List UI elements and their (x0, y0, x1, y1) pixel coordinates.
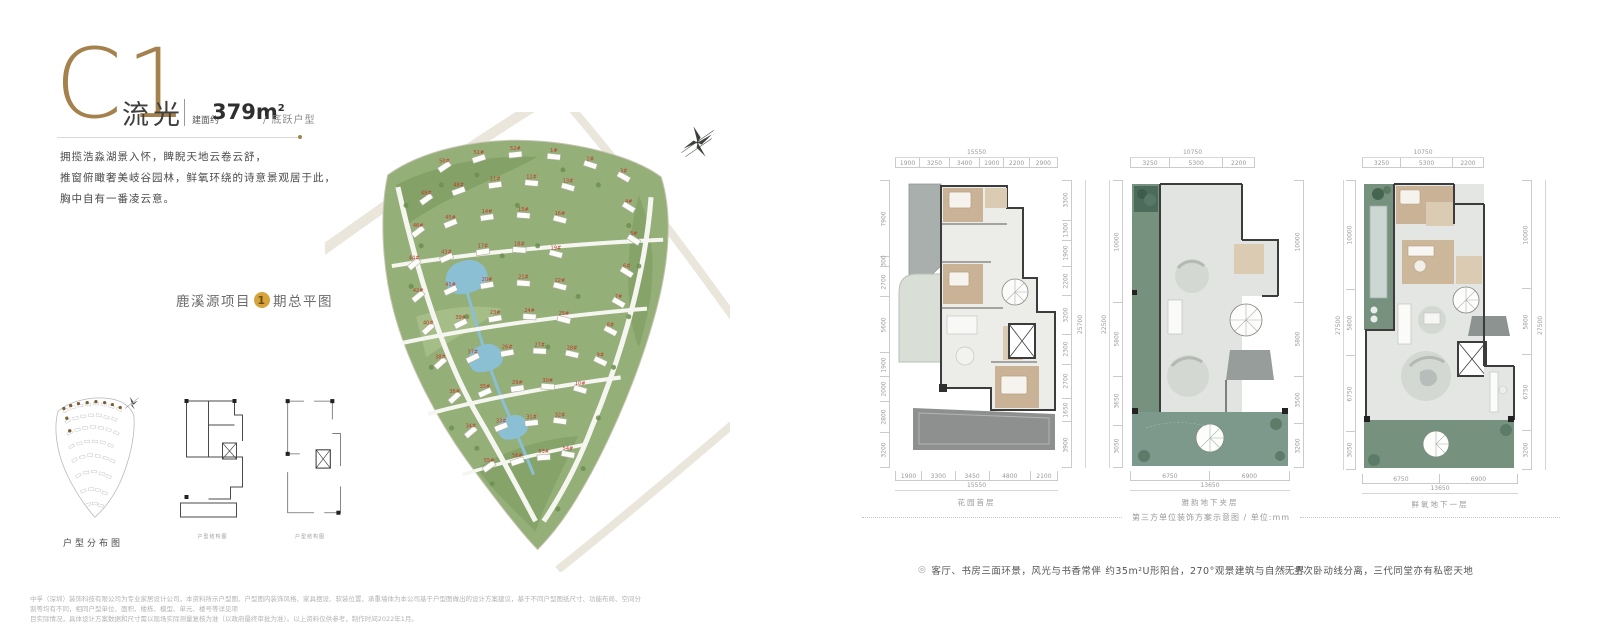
planB-dim-bottom-total: 13650 (1130, 481, 1290, 491)
svg-text:33#: 33# (496, 418, 507, 424)
planC-dim-bottom-total: 13650 (1362, 484, 1518, 494)
structure-diagram-2-label: 户型结构图 (265, 533, 355, 540)
svg-text:5#: 5# (630, 231, 637, 237)
svg-text:14#: 14# (482, 209, 493, 215)
svg-text:26#: 26# (502, 345, 513, 351)
svg-text:50#: 50# (439, 158, 450, 164)
disclaimer: 中孚（深圳）装饰科技有限公司为专业家居设计公司，本资料所示户型图、户型图内装饰风… (30, 594, 642, 624)
planB-dim-left: 10000580036503050 (1113, 180, 1123, 468)
svg-text:38#: 38# (435, 355, 446, 361)
svg-text:16#: 16# (555, 211, 566, 217)
planA-dim-top-total: 15550 (895, 148, 1058, 158)
ring-bullet-icon: ◎ (918, 565, 926, 575)
floorplan-mezzanine-level (1130, 180, 1290, 468)
planB-dim-top: 325053002200 (1130, 158, 1255, 168)
brochure-page: C1 流光 建面约 379m2 / 底跃户型 拥揽浩淼湖景入怀，睥睨天地云卷云舒… (0, 0, 1600, 643)
note-dotted-line-right (1300, 517, 1560, 518)
svg-text:29#: 29# (512, 380, 523, 386)
feature-text-3: 主次卧动线分离，三代同堂亦有私密天地 (1293, 563, 1473, 577)
svg-text:6#: 6# (623, 264, 630, 270)
svg-text:1#: 1# (550, 148, 557, 154)
note-dotted-line-left (862, 517, 1122, 518)
svg-text:10#: 10# (575, 381, 586, 387)
svg-text:28#: 28# (567, 346, 578, 352)
planB-dim-bottom: 67506900 (1130, 471, 1290, 481)
disclaimer-line-1: 中孚（深圳）装饰科技有限公司为专业家居设计公司，本资料所示户型图、户型图内装饰风… (30, 594, 642, 614)
planA-caption: 花园首层 (895, 497, 1058, 508)
distribution-diagram-label: 户型分布图 (38, 536, 148, 549)
svg-text:25#: 25# (559, 311, 570, 317)
svg-text:42#: 42# (413, 288, 424, 294)
svg-text:2#: 2# (587, 156, 594, 162)
svg-text:53#: 53# (538, 449, 549, 455)
phase-number-badge: 1 (254, 292, 270, 308)
svg-text:27#: 27# (534, 343, 545, 349)
floorplan-basement-level (1362, 180, 1518, 470)
svg-text:4#: 4# (625, 199, 632, 205)
svg-text:3#: 3# (620, 168, 627, 174)
unit-distribution-diagram (38, 392, 148, 524)
svg-text:32#: 32# (555, 412, 566, 418)
planC-dim-left-total: 27500 (1334, 180, 1344, 470)
header-rule-dot (298, 135, 302, 139)
planA-dim-bottom: 19003300345048002100 (895, 471, 1058, 481)
masterplan-title-suffix: 期总平图 (273, 290, 333, 310)
feature-text-2: 约35m²U形阳台，270°观景建筑与自然无界 (1105, 563, 1305, 577)
intro-line-1: 拥揽浩淼湖景入怀，睥睨天地云卷云舒， (60, 147, 336, 168)
svg-text:13#: 13# (563, 179, 574, 185)
svg-text:45#: 45# (445, 215, 456, 221)
disclaimer-line-2: 目实际情况，具体设计方案数据和尺寸需以现场实际测量复核为准（以政府最终审批为准）… (30, 614, 642, 624)
svg-text:22#: 22# (555, 278, 566, 284)
site-masterplan: 50#51#52#1#2#3#49#48#11#12#13#4#46#45#14… (325, 112, 730, 572)
svg-text:12#: 12# (526, 174, 537, 180)
intro-paragraph: 拥揽浩淼湖景入怀，睥睨天地云卷云舒， 推窗俯瞰奢美岐谷园林，鲜氧环绕的诗意景观居… (60, 147, 336, 210)
intro-line-3: 胸中自有一番凌云意。 (60, 189, 336, 210)
header-divider (184, 99, 185, 126)
svg-text:41#: 41# (445, 282, 456, 288)
north-compass-icon (681, 126, 713, 156)
feature-text-1: 客厅、书房三面环景，风光与书香常伴 (931, 563, 1101, 577)
header-rule (57, 137, 300, 138)
planA-dim-right: 330013001900220032002300270016503900 (1062, 180, 1072, 468)
planC-dim-left: 10000580067503050 (1346, 180, 1356, 470)
svg-text:15#: 15# (518, 207, 529, 213)
unit-name: 流光 (122, 93, 184, 132)
feature-item-2: ◎ 约35m²U形阳台，270°观景建筑与自然无界 (1092, 563, 1305, 577)
planA-dim-bottom-total: 15550 (895, 481, 1058, 491)
svg-text:31#: 31# (526, 414, 537, 420)
svg-text:24#: 24# (524, 308, 535, 314)
svg-text:39#: 39# (455, 315, 466, 321)
svg-text:36#: 36# (449, 389, 460, 395)
planC-dim-bottom: 67506900 (1362, 474, 1518, 484)
feature-item-1: ◎ 客厅、书房三面环景，风光与书香常伴 (918, 563, 1101, 577)
svg-text:9#: 9# (597, 353, 604, 359)
planC-dim-right: 10000580067503200 (1522, 180, 1532, 470)
ring-bullet-icon: ◎ (1280, 565, 1288, 575)
svg-text:56#: 56# (512, 453, 523, 459)
planA-dim-top: 190032503400190022002900 (895, 158, 1058, 168)
svg-text:37#: 37# (467, 350, 478, 356)
plan-note-row: 第三方单位装饰方案示意图 / 单位:mm (862, 512, 1560, 523)
svg-text:34#: 34# (465, 424, 476, 430)
plan-note-text: 第三方单位装饰方案示意图 / 单位:mm (1132, 512, 1290, 523)
svg-text:23#: 23# (490, 310, 501, 316)
planC-dim-top-total: 10750 (1362, 148, 1484, 158)
svg-text:40#: 40# (423, 320, 434, 326)
svg-text:46#: 46# (413, 223, 424, 229)
svg-text:44#: 44# (409, 255, 420, 261)
planC-dim-right-total: 27500 (1536, 180, 1546, 470)
svg-text:43#: 43# (441, 249, 452, 255)
svg-text:11#: 11# (490, 177, 501, 183)
svg-text:49#: 49# (421, 191, 432, 197)
feature-item-3: ◎ 主次卧动线分离，三代同堂亦有私密天地 (1280, 563, 1473, 577)
unit-type-label: / 底跃户型 (263, 111, 316, 126)
unit-structure-diagram-1 (170, 395, 255, 527)
planA-dim-right-total: 25700 (1076, 180, 1086, 468)
svg-text:20#: 20# (482, 277, 493, 283)
svg-text:35#: 35# (480, 384, 491, 390)
svg-text:52#: 52# (510, 146, 521, 152)
masterplan-title: 鹿溪源项目 1 期总平图 (176, 290, 333, 310)
svg-text:8#: 8# (607, 322, 614, 328)
planC-dim-top: 325053002200 (1362, 158, 1484, 168)
planB-dim-left-total: 22500 (1100, 180, 1110, 468)
structure-diagram-1-label: 户型结构图 (170, 533, 255, 540)
planA-dim-left: 7900300270056001900200028003200 (880, 180, 890, 468)
ring-bullet-icon: ◎ (1092, 565, 1100, 575)
planB-caption: 雅韵地下夹层 (1130, 497, 1290, 508)
masterplan-title-prefix: 鹿溪源项目 (176, 290, 251, 310)
svg-text:17#: 17# (478, 243, 489, 249)
svg-text:18#: 18# (514, 241, 525, 247)
intro-line-2: 推窗俯瞰奢美岐谷园林，鲜氧环绕的诗意景观居于此， (60, 168, 336, 189)
floorplan-garden-level (895, 180, 1058, 468)
unit-structure-diagram-2 (265, 393, 355, 531)
svg-text:54#: 54# (563, 446, 574, 452)
svg-text:55#: 55# (484, 458, 495, 464)
planB-dim-top-total: 10750 (1130, 148, 1255, 158)
svg-text:30#: 30# (542, 378, 553, 384)
svg-text:7#: 7# (615, 294, 622, 300)
svg-text:51#: 51# (474, 150, 485, 156)
planC-caption: 鲜氧地下一层 (1362, 499, 1518, 510)
svg-text:48#: 48# (453, 183, 464, 189)
svg-text:21#: 21# (518, 275, 529, 281)
svg-text:19#: 19# (551, 245, 562, 251)
planB-dim-right: 10000580035003200 (1294, 180, 1304, 468)
